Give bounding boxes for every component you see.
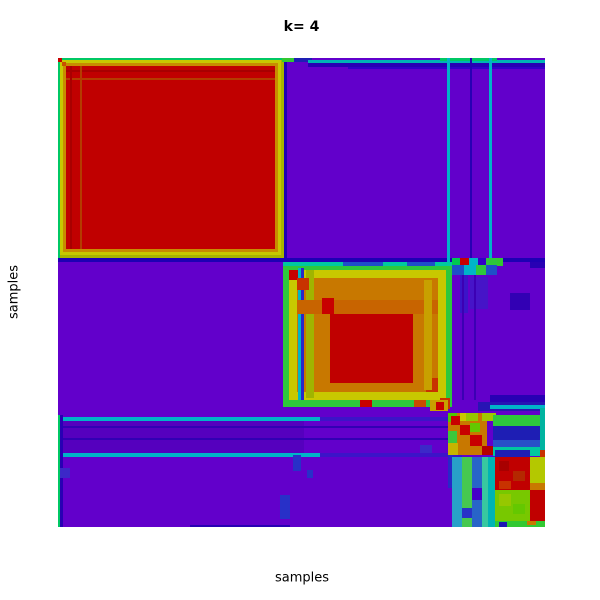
heatmap-rect [495, 450, 530, 457]
heatmap-rect [462, 508, 472, 518]
heatmap-rect [460, 413, 466, 421]
heatmap-rect [513, 471, 525, 481]
heatmap-rect [58, 420, 304, 453]
heatmap-rect [360, 400, 372, 407]
heatmap-rect [510, 293, 530, 310]
heatmap-rect [478, 258, 486, 265]
heatmap-rect [66, 78, 275, 80]
heatmap-rect [464, 265, 476, 275]
heatmap-rect [452, 258, 460, 265]
heatmap-rect [330, 313, 413, 383]
heatmap-rect [469, 258, 478, 265]
heatmap-rect [320, 453, 462, 457]
heatmap-rect [470, 58, 472, 262]
heatmap-rect [424, 280, 432, 390]
heatmap-rect [66, 66, 275, 249]
heatmap-rect [420, 445, 432, 453]
heatmap-rect [407, 262, 435, 266]
heatmap-rect [60, 468, 70, 478]
heatmap-rect [499, 481, 511, 489]
heatmap-rect [58, 438, 462, 440]
heatmap-rect [493, 415, 540, 426]
heatmap-rect [489, 58, 492, 262]
heatmap-canvas [58, 58, 545, 527]
heatmap-rect [447, 58, 450, 262]
heatmap-rect [493, 440, 540, 447]
heatmap-rect [70, 66, 72, 249]
plot-title: k= 4 [58, 19, 545, 35]
heatmap-rect [282, 58, 294, 62]
heatmap-rect [470, 277, 488, 309]
heatmap-rect [486, 258, 497, 265]
heatmap-rect [58, 453, 320, 457]
heatmap-rect [436, 402, 444, 410]
heatmap-rect [530, 483, 545, 490]
heatmap-rect [474, 275, 476, 400]
heatmap-rect [280, 495, 290, 519]
heatmap-rect [322, 298, 334, 314]
heatmap-rect [490, 405, 545, 409]
heatmap-rect [80, 66, 82, 249]
heatmap-rect [540, 450, 545, 457]
heatmap-rect [448, 443, 458, 455]
heatmap-rect [513, 504, 525, 514]
heatmap-rect [190, 525, 290, 527]
heatmap-rect [343, 262, 383, 266]
y-axis-label: samples [7, 265, 22, 319]
heatmap-rect [284, 58, 287, 262]
heatmap-rect [293, 455, 301, 471]
consensus-matrix-figure: k= 4 samples samples [0, 0, 600, 600]
heatmap-rect [499, 494, 511, 506]
x-axis-label: samples [275, 571, 329, 586]
heatmap-rect [497, 258, 503, 266]
heatmap-rect [486, 265, 497, 275]
heatmap-rect [451, 416, 460, 425]
heatmap-rect [530, 490, 545, 521]
heatmap-rect [58, 426, 462, 428]
heatmap-rect [462, 275, 464, 400]
heatmap-rect [58, 417, 320, 421]
heatmap-rect [452, 457, 462, 527]
heatmap-rect [472, 488, 482, 500]
heatmap-rect [62, 62, 66, 66]
heatmap-rect [452, 265, 464, 275]
heatmap-rect [466, 413, 478, 421]
heatmap-rect [66, 70, 275, 72]
heatmap-rect [470, 435, 482, 446]
heatmap-rect [470, 423, 480, 432]
heatmap-rect [499, 461, 509, 471]
heatmap-rect [476, 265, 486, 275]
heatmap-rect [488, 457, 495, 527]
heatmap-rect [493, 426, 540, 440]
heatmap-rect [414, 400, 426, 407]
heatmap-rect [530, 457, 545, 483]
heatmap-rect [297, 278, 309, 290]
heatmap-rect [499, 522, 507, 527]
heatmap-rect [320, 417, 462, 421]
heatmap-rect [530, 262, 545, 268]
heatmap-rect [448, 431, 457, 443]
heatmap-rect [527, 521, 536, 525]
heatmap-rect [460, 258, 469, 265]
heatmap-rect [460, 425, 470, 435]
heatmap-rect [307, 470, 313, 478]
heatmap-rect [297, 300, 438, 314]
